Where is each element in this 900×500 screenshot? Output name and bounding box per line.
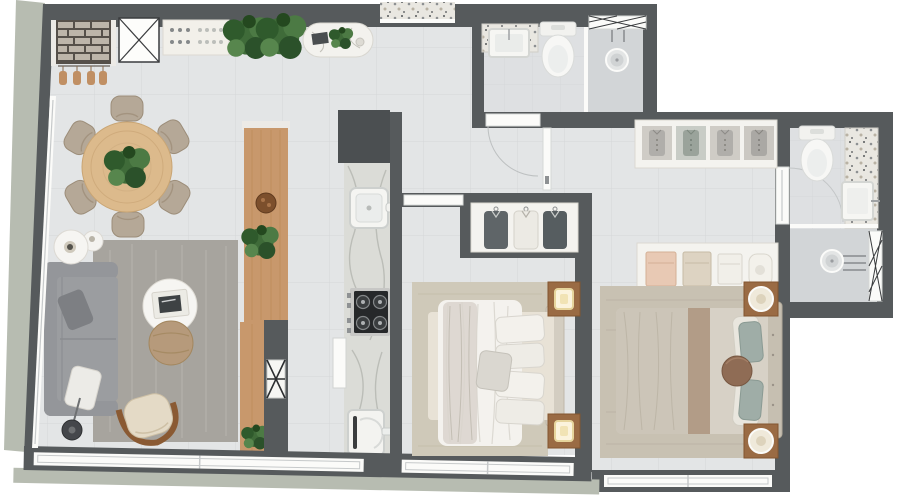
console-book bbox=[311, 32, 328, 45]
floor-plan bbox=[0, 0, 900, 500]
island-plant bbox=[241, 225, 278, 259]
appliance-handle bbox=[353, 416, 357, 449]
bathroom1-door-threshold bbox=[486, 114, 540, 126]
shower-glass bbox=[790, 224, 878, 228]
folded-clothes-peach bbox=[646, 252, 676, 286]
service-door-leaf bbox=[333, 338, 346, 388]
sideboard bbox=[163, 20, 229, 55]
folded-clothes-white bbox=[718, 254, 742, 284]
bedroom1-wardrobe bbox=[471, 203, 578, 252]
oval-console bbox=[303, 23, 373, 57]
wing-south-wall bbox=[790, 302, 893, 318]
sofa bbox=[44, 262, 118, 416]
nightstand bbox=[548, 282, 580, 316]
kitchen-island bbox=[244, 128, 288, 322]
nightstand bbox=[548, 414, 580, 448]
toilet bbox=[799, 126, 835, 181]
nightstand bbox=[744, 282, 778, 316]
ottoman-pouf bbox=[149, 321, 193, 365]
table-plant bbox=[104, 146, 150, 188]
suite-door-leaf bbox=[543, 128, 551, 190]
shower-glass bbox=[584, 27, 588, 112]
folded-sheet bbox=[443, 302, 477, 444]
shaft-x-marker bbox=[267, 360, 285, 398]
folded-clothes-tan bbox=[683, 252, 711, 286]
fruit-bowl bbox=[256, 193, 276, 213]
lattice-window bbox=[589, 16, 646, 29]
bedroom1-door-threshold bbox=[404, 195, 463, 205]
magazine bbox=[158, 295, 182, 313]
entry-threshold bbox=[380, 19, 455, 23]
bed-runner bbox=[688, 308, 710, 434]
fridge bbox=[338, 110, 390, 163]
lattice-window bbox=[869, 231, 882, 301]
cooktop bbox=[347, 288, 390, 336]
bricks bbox=[58, 22, 109, 60]
dining-chair bbox=[112, 212, 144, 237]
master-bed bbox=[616, 302, 782, 438]
master-bedroom bbox=[600, 282, 782, 458]
vanity-sink bbox=[489, 29, 529, 57]
master-window bbox=[604, 475, 772, 487]
hall-wardrobe bbox=[635, 120, 777, 168]
hanging-shirts bbox=[484, 207, 567, 249]
duvet bbox=[616, 308, 692, 434]
kitchen-bed1-wall bbox=[390, 112, 402, 458]
decor-plant bbox=[256, 13, 307, 59]
toilet bbox=[540, 22, 576, 77]
console-plant bbox=[329, 27, 353, 49]
floor-plan-canvas bbox=[0, 0, 900, 500]
corridor-tiles bbox=[402, 128, 592, 193]
dining-chair bbox=[111, 96, 143, 121]
shaft-x-box bbox=[119, 18, 159, 62]
nightstand bbox=[744, 424, 778, 458]
accent-pillow bbox=[476, 350, 513, 392]
roll-pillow bbox=[722, 356, 752, 386]
